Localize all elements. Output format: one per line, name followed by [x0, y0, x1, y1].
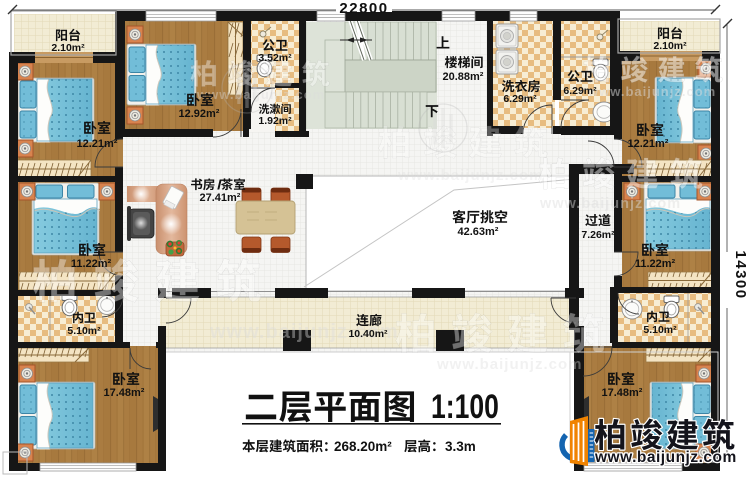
svg-text:12.21m²: 12.21m²: [77, 138, 118, 150]
svg-text:2.10m²: 2.10m²: [51, 42, 85, 54]
svg-text:17.48m²: 17.48m²: [602, 387, 643, 399]
svg-text:www.baijunjz.com: www.baijunjz.com: [397, 167, 543, 184]
svg-text:11.22m²: 11.22m²: [635, 258, 676, 270]
svg-text:www.baijunjz.com: www.baijunjz.com: [539, 196, 681, 212]
svg-text:7.26m²: 7.26m²: [581, 229, 615, 241]
svg-text:12.92m²: 12.92m²: [179, 108, 220, 120]
svg-text:22800: 22800: [339, 0, 388, 17]
svg-text:3.52m²: 3.52m²: [258, 52, 292, 64]
svg-text:www.baijunjz.com: www.baijunjz.com: [594, 449, 737, 466]
svg-text:1.92m²: 1.92m²: [258, 115, 292, 127]
svg-text:www.baijunjz.com: www.baijunjz.com: [587, 84, 716, 99]
svg-text:2.10m²: 2.10m²: [653, 40, 687, 52]
svg-text:14300: 14300: [732, 250, 749, 299]
svg-text:www.baijunjz.com: www.baijunjz.com: [436, 356, 582, 373]
svg-text:www.baijunjz.com: www.baijunjz.com: [196, 87, 325, 102]
svg-text:42.63m²: 42.63m²: [458, 226, 499, 238]
svg-text:17.48m²: 17.48m²: [104, 387, 145, 399]
svg-text:5.10m²: 5.10m²: [67, 325, 101, 337]
svg-text:10.40m²: 10.40m²: [348, 328, 388, 340]
svg-text:20.88m²: 20.88m²: [443, 71, 484, 83]
svg-text:27.41m²: 27.41m²: [200, 192, 241, 204]
svg-text:11.22m²: 11.22m²: [71, 258, 112, 270]
svg-text:6.29m²: 6.29m²: [503, 93, 537, 105]
svg-text:268.20m²: 268.20m²: [334, 439, 392, 454]
svg-text:3.3m: 3.3m: [445, 439, 476, 454]
svg-text:1:100: 1:100: [431, 388, 499, 426]
svg-text:5.10m²: 5.10m²: [643, 324, 677, 336]
svg-text:6.29m²: 6.29m²: [563, 85, 597, 97]
svg-text:12.21m²: 12.21m²: [628, 138, 669, 150]
